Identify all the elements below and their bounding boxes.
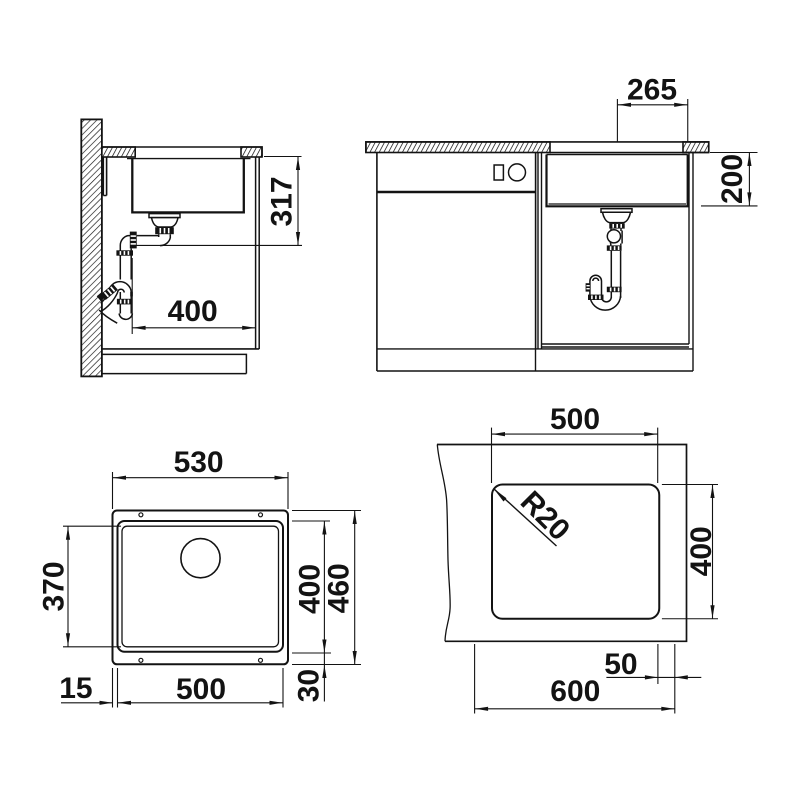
svg-text:15: 15 (59, 672, 92, 705)
svg-text:265: 265 (627, 74, 677, 107)
svg-text:400: 400 (168, 295, 218, 328)
svg-text:317: 317 (266, 176, 299, 226)
svg-text:500: 500 (176, 673, 226, 706)
svg-text:500: 500 (550, 403, 600, 436)
svg-text:460: 460 (323, 563, 356, 613)
svg-text:370: 370 (37, 561, 70, 611)
svg-text:600: 600 (550, 675, 600, 708)
svg-text:530: 530 (174, 446, 224, 479)
svg-text:30: 30 (292, 669, 325, 702)
svg-text:400: 400 (685, 526, 718, 576)
svg-text:200: 200 (716, 154, 749, 204)
svg-text:50: 50 (604, 648, 637, 681)
svg-text:400: 400 (293, 564, 326, 614)
